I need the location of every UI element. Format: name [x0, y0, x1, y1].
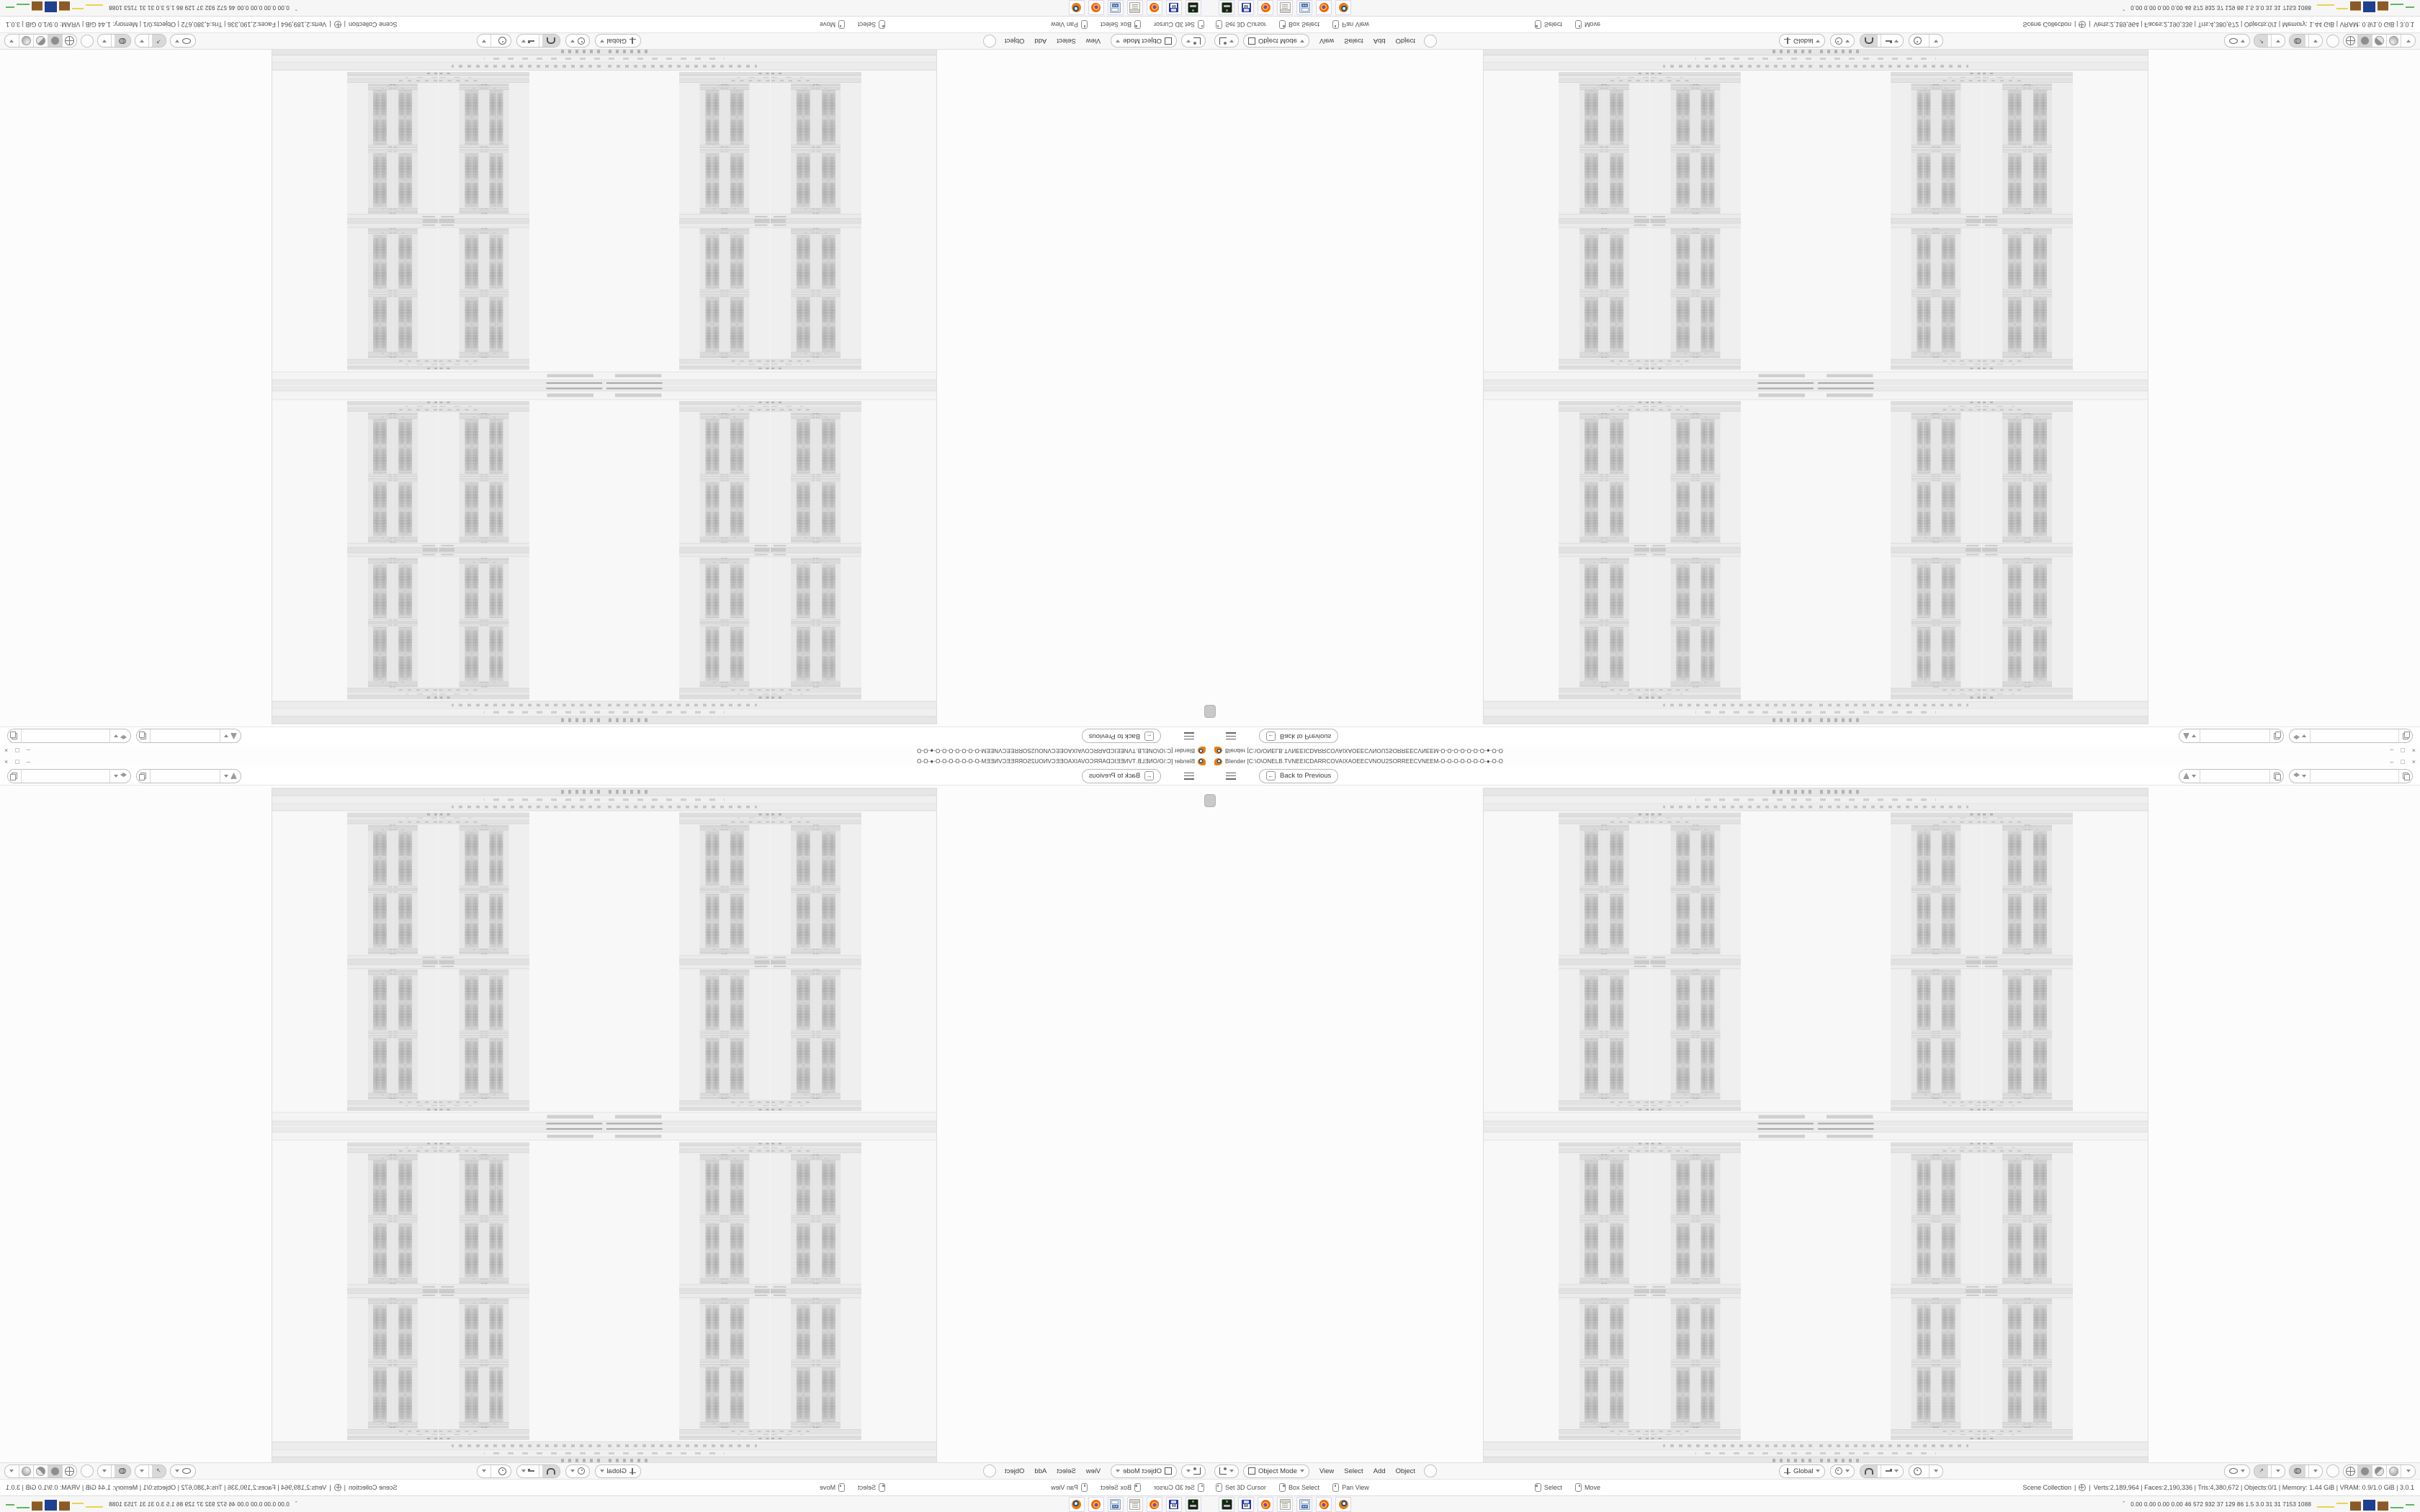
mouse-left-icon	[1216, 1483, 1222, 1492]
editor-type-button[interactable]	[1181, 35, 1206, 48]
floppy-64-icon: 64	[1242, 1500, 1251, 1509]
chevron-down-icon	[1186, 40, 1191, 42]
taskbar-notepad[interactable]	[1127, 1, 1143, 16]
menu-object[interactable]: Object	[1396, 37, 1415, 45]
snap-increment-icon	[528, 1470, 534, 1472]
shading-dropdown[interactable]	[2401, 35, 2415, 48]
restore-button[interactable]: □	[15, 747, 19, 755]
menu-view[interactable]: View	[1319, 1467, 1334, 1475]
taskbar-firefox[interactable]	[1258, 1, 1273, 16]
gizmos-dropdown[interactable]	[135, 35, 149, 48]
shading-material-button[interactable]	[2372, 1465, 2386, 1477]
snapping-control[interactable]	[516, 35, 560, 48]
solid-icon	[2361, 1467, 2369, 1475]
mouse-right-icon	[1134, 20, 1141, 29]
view-layer-name-field[interactable]	[22, 730, 110, 743]
snapping-control[interactable]	[1860, 1464, 1904, 1478]
hint-box-select: Box Select	[1279, 1483, 1319, 1492]
new-view-layer-icon[interactable]	[2403, 773, 2408, 779]
graph-brown-bar	[59, 1501, 70, 1511]
proportional-toggle[interactable]	[1909, 1465, 1926, 1477]
arrow-left-icon: ←	[1266, 732, 1276, 741]
snapping-control[interactable]	[1860, 35, 1904, 48]
mirrored-desktop-composition: Blender [C:\O\ONELB.TVNEEICDARRCOVAIXAOE…	[0, 0, 2420, 1512]
hint-set-3d-cursor: Set 3D Cursor	[1154, 1483, 1204, 1492]
close-button[interactable]: ×	[4, 758, 8, 765]
editor-3d-viewport-icon	[1219, 37, 1227, 45]
graph-blue-bar	[45, 1500, 57, 1511]
grease-pencil-button[interactable]	[1424, 1464, 1437, 1477]
collapsed-menus-icon[interactable]	[1184, 733, 1194, 740]
chevron-down-icon	[2241, 1470, 2245, 1472]
transform-orientation-dropdown[interactable]: Global	[1779, 35, 1825, 48]
console-app-icon	[1188, 3, 1199, 14]
chevron-down-icon	[570, 1470, 575, 1472]
blender-icon	[1339, 1500, 1348, 1509]
proportional-toggle[interactable]	[494, 35, 511, 48]
graph-blue-bar	[2363, 1500, 2375, 1511]
gizmo-icon: ↗	[2259, 38, 2264, 44]
taskbar-setup-win64[interactable]: 64	[1238, 1, 1254, 16]
graph-green-line	[2406, 6, 2414, 8]
view-layer-selector[interactable]	[7, 729, 131, 744]
toolbar-collapsed-tab[interactable]	[1210, 705, 1216, 718]
scene-name-field[interactable]	[2200, 770, 2269, 783]
chevron-down-icon	[2406, 1470, 2411, 1472]
tray-expand-chevron[interactable]: ˆ	[295, 1500, 297, 1508]
overlays-dropdown[interactable]	[98, 35, 112, 48]
overlays-control[interactable]	[97, 1464, 131, 1478]
taskbar-notepad[interactable]	[1277, 1497, 1293, 1512]
shading-rendered-button[interactable]	[2386, 1465, 2401, 1477]
view-layer-selector[interactable]	[2289, 769, 2413, 783]
proportional-falloff-dropdown[interactable]	[478, 1465, 491, 1477]
mouse-right-icon	[1279, 20, 1286, 29]
mode-dropdown[interactable]: Object Mode	[1111, 35, 1177, 48]
object-visibility-dropdown[interactable]	[170, 1464, 196, 1478]
console-app-icon	[1222, 3, 1232, 14]
transform-orientation-dropdown[interactable]: Global	[1779, 1464, 1825, 1478]
mouse-left-icon	[1535, 20, 1541, 29]
chevron-down-icon	[224, 775, 228, 778]
scene-name-field[interactable]	[2200, 730, 2269, 743]
gizmos-control[interactable]: ↗	[135, 1464, 166, 1478]
shading-solid-button[interactable]	[2357, 35, 2372, 48]
scene-statistics: Scene Collection | | Verts:2,189,964 | F…	[2023, 21, 2415, 28]
taskbar-notepad[interactable]	[1277, 1, 1293, 16]
snap-target-dropdown[interactable]	[1881, 35, 1903, 48]
collapsed-menus-icon[interactable]	[1226, 773, 1236, 780]
header-center-group: Global	[1779, 35, 1943, 48]
view-layer-name-field[interactable]	[2310, 730, 2398, 743]
shading-dropdown[interactable]	[2401, 1465, 2415, 1477]
hint-set-3d-cursor: Set 3D Cursor	[1216, 20, 1266, 29]
overlays-control[interactable]	[97, 35, 131, 48]
gizmos-toggle[interactable]: ↗	[2254, 35, 2268, 48]
back-to-previous-button[interactable]: ← Back to Previous	[1259, 769, 1338, 783]
pivot-point-icon	[1835, 37, 1842, 45]
taskbar-setup-win64[interactable]: 64	[1166, 1, 1182, 16]
taskbar-firefox-2[interactable]	[1316, 1, 1332, 16]
taskbar-blender[interactable]	[1069, 1, 1085, 16]
proportional-editing-control[interactable]	[477, 1464, 511, 1478]
chevron-down-icon	[1116, 40, 1120, 42]
object-visibility-icon	[182, 1468, 191, 1474]
xray-toggle[interactable]	[81, 35, 94, 48]
restore-button[interactable]: □	[15, 758, 19, 765]
grease-pencil-button[interactable]	[983, 1464, 996, 1477]
proportional-falloff-dropdown[interactable]	[1929, 35, 1942, 48]
chevron-down-icon	[2302, 775, 2306, 778]
minimize-button[interactable]: –	[2390, 747, 2393, 755]
pivot-point-dropdown[interactable]	[1830, 1464, 1855, 1478]
taskbar-setup-win64[interactable]: 64	[1238, 1497, 1254, 1512]
overlays-dropdown[interactable]	[2308, 35, 2322, 48]
object-visibility-dropdown[interactable]	[2224, 35, 2250, 48]
snap-toggle[interactable]	[1860, 35, 1878, 48]
editor-3d-viewport-icon	[1193, 37, 1201, 45]
shading-solid-button[interactable]	[2357, 1465, 2372, 1477]
scene-selector[interactable]	[2179, 769, 2284, 783]
mode-dropdown[interactable]: Object Mode	[1243, 35, 1309, 48]
taskbar-setup-win64[interactable]: 64	[1166, 1497, 1182, 1512]
proportional-editing-icon	[1914, 37, 1922, 45]
gizmos-control[interactable]: ↗	[135, 35, 166, 48]
chevron-down-icon	[2276, 40, 2280, 42]
shading-solid-button[interactable]	[48, 1465, 63, 1477]
gizmos-control[interactable]: ↗	[2254, 1464, 2285, 1478]
chevron-down-icon	[102, 40, 107, 42]
minimize-button[interactable]: –	[2390, 758, 2393, 765]
taskbar-blender[interactable]	[1335, 1, 1351, 16]
minimize-button[interactable]: –	[27, 758, 30, 765]
restore-button[interactable]: □	[2401, 747, 2404, 755]
shading-material-button[interactable]	[34, 1465, 48, 1477]
system-monitor-numbers: 0.00 0.00 0.00 0.00 46 572 932 37 129 86…	[109, 5, 290, 12]
pivot-point-icon	[1835, 1467, 1842, 1475]
solid-icon	[51, 1467, 59, 1475]
menu-select[interactable]: Select	[1057, 1467, 1075, 1475]
new-scene-icon[interactable]	[2274, 773, 2280, 779]
menu-object[interactable]: Object	[1396, 1467, 1415, 1475]
notepad-icon	[1130, 1499, 1141, 1510]
menu-add[interactable]: Add	[1034, 1467, 1047, 1475]
taskbar-firefox[interactable]	[1258, 1497, 1273, 1512]
snap-toggle[interactable]	[542, 35, 560, 48]
empty-axes-icon	[334, 1484, 341, 1491]
firefox-icon	[1150, 1500, 1160, 1509]
menu-view[interactable]: View	[1319, 37, 1334, 45]
object-visibility-dropdown[interactable]	[170, 35, 196, 48]
proportional-falloff-dropdown[interactable]	[478, 35, 491, 48]
xray-toggle[interactable]	[2326, 1464, 2339, 1477]
gizmos-dropdown[interactable]	[135, 1465, 149, 1477]
taskbar-calculator[interactable]	[1296, 1497, 1312, 1512]
xray-toggle[interactable]	[2326, 35, 2339, 48]
minimize-button[interactable]: –	[27, 747, 30, 755]
snap-toggle[interactable]	[542, 1465, 560, 1477]
back-to-previous-button[interactable]: ← Back to Previous	[1082, 769, 1161, 783]
taskbar-app-icons: 64	[1219, 1, 1351, 16]
new-view-layer-icon[interactable]	[12, 733, 17, 739]
proportional-toggle[interactable]	[494, 1465, 511, 1477]
solid-icon	[51, 37, 59, 45]
console-app-icon	[1188, 1499, 1199, 1510]
taskbar-console-app[interactable]	[1219, 1, 1234, 16]
taskbar-notepad[interactable]	[1127, 1497, 1143, 1512]
grease-pencil-button[interactable]	[1424, 35, 1437, 48]
taskbar-firefox[interactable]	[1147, 1497, 1162, 1512]
taskbar-calculator[interactable]	[1296, 1, 1312, 16]
transform-orientation-dropdown[interactable]: Global	[595, 35, 641, 48]
tray-expand-chevron[interactable]: ˆ	[2123, 1500, 2125, 1508]
overlays-toggle[interactable]	[2290, 35, 2305, 48]
hint-select: Select	[1535, 20, 1562, 29]
graph-brown-bar	[2350, 1, 2361, 11]
overlays-control[interactable]	[2289, 35, 2323, 48]
gizmos-toggle[interactable]: ↗	[2254, 1465, 2268, 1477]
scene-name-field[interactable]	[151, 770, 220, 783]
graph-yellow-line	[86, 1506, 103, 1508]
magnet-icon	[1865, 1468, 1873, 1475]
proportional-toggle[interactable]	[1909, 35, 1926, 48]
viewport-3d[interactable]	[0, 50, 1210, 726]
chevron-down-icon	[1186, 1470, 1191, 1472]
graph-yellow-line	[72, 1503, 84, 1504]
gizmos-dropdown[interactable]	[2271, 1465, 2285, 1477]
scene-selector[interactable]	[136, 729, 241, 744]
proportional-editing-control[interactable]	[477, 35, 511, 48]
scene-name-field[interactable]	[151, 730, 220, 743]
system-monitor-numbers: 0.00 0.00 0.00 0.00 46 572 932 37 129 86…	[2130, 5, 2311, 12]
notepad-icon	[1130, 3, 1141, 14]
chevron-down-icon	[2313, 1470, 2318, 1472]
view-layer-name-field[interactable]	[2310, 770, 2398, 783]
taskbar-blender[interactable]	[1069, 1497, 1085, 1512]
chevron-down-icon	[175, 1470, 179, 1472]
snap-toggle[interactable]	[1860, 1465, 1878, 1477]
layers-icon	[120, 773, 127, 779]
gizmos-control[interactable]: ↗	[2254, 35, 2285, 48]
shading-rendered-button[interactable]	[19, 1465, 34, 1477]
pivot-point-dropdown[interactable]	[565, 1464, 590, 1478]
calculator-icon	[1299, 3, 1310, 14]
shading-wireframe-button[interactable]	[2344, 1465, 2357, 1477]
shading-wireframe-button[interactable]	[63, 1465, 76, 1477]
calculator-icon	[1299, 1499, 1310, 1510]
new-view-layer-icon[interactable]	[12, 773, 17, 779]
active-collection: Scene Collection	[2023, 21, 2072, 28]
snap-increment-icon	[528, 40, 534, 42]
scene-selector[interactable]	[136, 769, 241, 783]
chevron-down-icon	[140, 1470, 144, 1472]
back-to-previous-button[interactable]: ← Back to Previous	[1082, 729, 1161, 744]
gizmos-dropdown[interactable]	[2271, 35, 2285, 48]
viewport-3d[interactable]	[1210, 786, 2420, 1462]
overlays-toggle[interactable]	[115, 35, 130, 48]
blender-topbar: ← Back to Previous	[0, 726, 1210, 745]
viewport-3d[interactable]	[1210, 50, 2420, 726]
tray-expand-chevron[interactable]: ˆ	[2123, 4, 2125, 12]
overlays-toggle[interactable]	[115, 1465, 130, 1477]
gizmos-toggle[interactable]: ↗	[152, 35, 166, 48]
mode-dropdown[interactable]: Object Mode	[1111, 1464, 1177, 1478]
scene-icon	[2183, 773, 2190, 779]
shading-rendered-button[interactable]	[2386, 35, 2401, 48]
shading-dropdown[interactable]	[5, 1465, 19, 1477]
rendered-icon	[2389, 1467, 2398, 1476]
view-layer-selector[interactable]	[7, 769, 131, 783]
overlays-control[interactable]	[2289, 1464, 2323, 1478]
graph-green-line	[2390, 1507, 2403, 1508]
snap-increment-icon	[1886, 1470, 1892, 1472]
editor-type-button[interactable]	[1214, 35, 1239, 48]
taskbar-console-app[interactable]	[1219, 1497, 1234, 1512]
toolbar-collapsed-tab[interactable]	[1204, 794, 1210, 807]
stats-text: Verts:2,189,964 | Faces:2,190,336 | Tris…	[6, 21, 326, 28]
menu-view[interactable]: View	[1086, 1467, 1101, 1475]
menu-add[interactable]: Add	[1373, 1467, 1386, 1475]
proportional-editing-control[interactable]	[1909, 35, 1943, 48]
new-scene-icon[interactable]	[140, 733, 146, 739]
grease-pencil-button[interactable]	[983, 35, 996, 48]
taskbar-console-app[interactable]	[1186, 1497, 1201, 1512]
taskbar-calculator[interactable]	[1108, 1, 1124, 16]
mouse-middle-icon	[1081, 20, 1088, 29]
wireframe-icon	[2346, 37, 2355, 46]
toolbar-collapsed-tab[interactable]	[1204, 705, 1210, 718]
menu-select[interactable]: Select	[1057, 37, 1075, 45]
view-layer-name-field[interactable]	[22, 770, 110, 783]
axes-icon	[1784, 1468, 1791, 1475]
chevron-down-icon	[175, 40, 179, 42]
taskbar-firefox[interactable]	[1147, 1, 1162, 16]
taskbar-firefox-2[interactable]	[1088, 1, 1104, 16]
snap-target-dropdown[interactable]	[1881, 1465, 1903, 1477]
snap-target-dropdown[interactable]	[517, 35, 539, 48]
close-button[interactable]: ×	[4, 747, 8, 755]
gizmos-toggle[interactable]: ↗	[152, 1465, 166, 1477]
system-tray: ˆ 0.00 0.00 0.00 0.00 46 572 932 37 129 …	[2123, 1498, 2414, 1511]
blender-logo-icon	[1198, 758, 1206, 765]
shading-wireframe-button[interactable]	[2344, 35, 2357, 48]
axes-icon	[1784, 38, 1791, 45]
taskbar-firefox-2[interactable]	[1088, 1497, 1104, 1512]
overlays-toggle[interactable]	[2290, 1465, 2305, 1477]
graph-yellow-line	[72, 8, 84, 9]
tray-expand-chevron[interactable]: ˆ	[295, 4, 297, 12]
snap-target-dropdown[interactable]	[517, 1465, 539, 1477]
scene-selector[interactable]	[2179, 729, 2284, 744]
windows-taskbar: 64 ˆ 0.00 0.00 0.00 0.00 46 572 932 37 1…	[0, 0, 1210, 17]
collapsed-menus-icon[interactable]	[1184, 773, 1194, 780]
shading-wireframe-button[interactable]	[63, 35, 76, 48]
shading-rendered-button[interactable]	[19, 35, 34, 48]
menu-select[interactable]: Select	[1344, 37, 1363, 45]
header-right-group: ↗	[2224, 1464, 2416, 1478]
shading-mode-group	[4, 35, 77, 48]
hint-box-select: Box Select	[1279, 20, 1319, 29]
chevron-down-icon	[600, 40, 604, 42]
object-visibility-icon	[2229, 38, 2238, 44]
chevron-down-icon	[224, 735, 228, 738]
menu-select[interactable]: Select	[1344, 1467, 1363, 1475]
shading-solid-button[interactable]	[48, 35, 63, 48]
shading-material-button[interactable]	[34, 35, 48, 48]
taskbar-console-app[interactable]	[1186, 1, 1201, 16]
new-scene-icon[interactable]	[2274, 733, 2280, 739]
active-collection: Scene Collection	[349, 1484, 398, 1491]
topbar-right-group	[7, 729, 241, 744]
system-monitor-numbers: 0.00 0.00 0.00 0.00 46 572 932 37 129 86…	[2130, 1501, 2311, 1508]
shading-material-button[interactable]	[2372, 35, 2386, 48]
recursive-screenshot-image	[272, 788, 937, 1465]
taskbar-calculator[interactable]	[1108, 1497, 1124, 1512]
editor-type-button[interactable]	[1181, 1464, 1206, 1478]
new-view-layer-icon[interactable]	[2403, 733, 2408, 739]
proportional-editing-icon	[498, 37, 506, 45]
menu-object[interactable]: Object	[1005, 37, 1024, 45]
graph-yellow-line	[2336, 8, 2348, 9]
empty-axes-icon	[2079, 1484, 2086, 1491]
transform-orientation-dropdown[interactable]: Global	[595, 1464, 641, 1478]
hint-pan-view: Pan View	[1051, 1483, 1088, 1492]
menu-add[interactable]: Add	[1034, 37, 1047, 45]
mouse-left-icon	[1198, 20, 1204, 29]
toolbar-collapsed-tab[interactable]	[1210, 794, 1216, 807]
mode-dropdown[interactable]: Object Mode	[1243, 1464, 1309, 1478]
view-layer-selector[interactable]	[2289, 729, 2413, 744]
back-to-previous-button[interactable]: ← Back to Previous	[1259, 729, 1338, 744]
editor-type-button[interactable]	[1214, 1464, 1239, 1478]
blender-icon	[1072, 4, 1082, 13]
material-preview-icon	[36, 1467, 45, 1476]
overlays-dropdown[interactable]	[2308, 1465, 2322, 1477]
taskbar-blender[interactable]	[1335, 1497, 1351, 1512]
system-tray: ˆ 0.00 0.00 0.00 0.00 46 572 932 37 129 …	[2123, 1, 2414, 14]
shading-dropdown[interactable]	[5, 35, 19, 48]
menu-add[interactable]: Add	[1373, 37, 1386, 45]
notepad-icon	[1280, 3, 1291, 14]
graph-green-line	[2406, 1504, 2414, 1506]
menu-object[interactable]: Object	[1005, 1467, 1024, 1475]
overlays-dropdown[interactable]	[98, 1465, 112, 1477]
viewport-3d[interactable]	[0, 786, 1210, 1462]
pivot-point-dropdown[interactable]	[1830, 35, 1855, 48]
quadrant-top-right-mirrored-vertical: Blender [C:\O\ONELB.TVNEEICDARRCOVAIXAOE…	[1210, 0, 2420, 756]
xray-toggle[interactable]	[81, 1464, 94, 1477]
restore-button[interactable]: □	[2401, 758, 2404, 765]
chevron-down-icon	[1894, 1470, 1899, 1472]
object-visibility-dropdown[interactable]	[2224, 1464, 2250, 1478]
calculator-icon	[1111, 3, 1121, 14]
close-button[interactable]: ×	[2412, 758, 2416, 765]
proportional-editing-control[interactable]	[1909, 1464, 1943, 1478]
pivot-point-dropdown[interactable]	[565, 35, 590, 48]
gizmo-icon: ↗	[156, 1468, 161, 1474]
viewport-header: Object Mode View Select Add Object Globa…	[0, 1462, 1210, 1479]
blender-logo-icon	[1214, 747, 1222, 755]
snapping-control[interactable]	[516, 1464, 560, 1478]
taskbar-firefox-2[interactable]	[1316, 1497, 1332, 1512]
proportional-editing-icon	[1914, 1467, 1922, 1475]
collapsed-menus-icon[interactable]	[1226, 733, 1236, 740]
menu-view[interactable]: View	[1086, 37, 1101, 45]
gizmo-icon: ↗	[2259, 1468, 2264, 1474]
proportional-falloff-dropdown[interactable]	[1929, 1465, 1942, 1477]
close-button[interactable]: ×	[2412, 747, 2416, 755]
new-scene-icon[interactable]	[140, 773, 146, 779]
